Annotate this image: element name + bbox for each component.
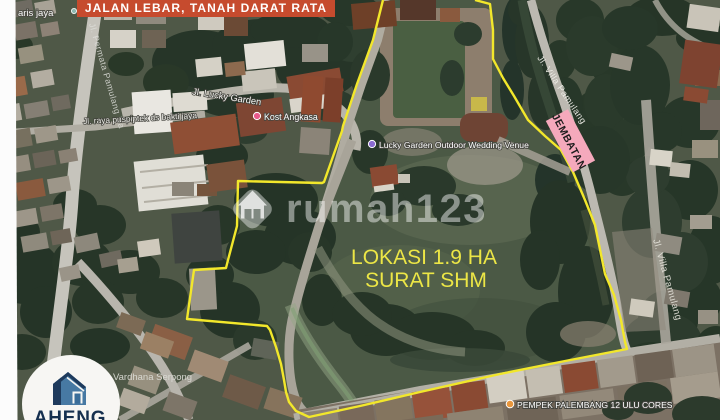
svg-text:JALAN LEBAR, TANAH DARAT RATA: JALAN LEBAR, TANAH DARAT RATA: [85, 1, 327, 15]
svg-text:AHENG: AHENG: [34, 408, 107, 420]
svg-text:Vardhana Serpong: Vardhana Serpong: [113, 372, 192, 383]
svg-text:LOKASI 1.9 HA: LOKASI 1.9 HA: [351, 246, 497, 269]
svg-text:SURAT SHM: SURAT SHM: [365, 269, 487, 292]
svg-text:PEMPEK PALEMBANG 12 ULU CORES: PEMPEK PALEMBANG 12 ULU CORES: [517, 400, 673, 410]
svg-text:rumah123: rumah123: [286, 187, 487, 231]
svg-text:Lucky Garden Outdoor Wedding V: Lucky Garden Outdoor Wedding Venue: [379, 140, 529, 150]
svg-text:Kost Angkasa: Kost Angkasa: [264, 112, 318, 122]
svg-text:aris jaya: aris jaya: [18, 8, 54, 19]
